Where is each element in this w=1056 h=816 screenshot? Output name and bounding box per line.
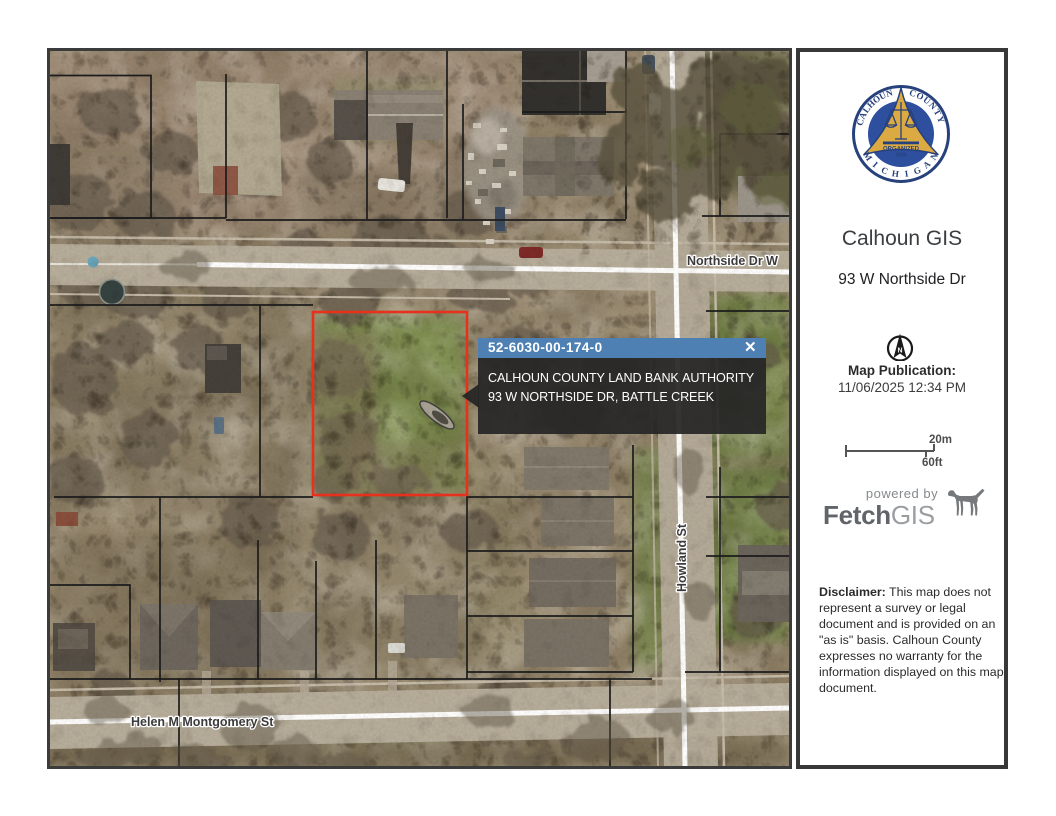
svg-text:N: N — [897, 348, 902, 355]
svg-text:1833: 1833 — [895, 153, 906, 159]
svg-text:H: H — [891, 168, 899, 179]
svg-text:Northside Dr W: Northside Dr W — [687, 254, 778, 268]
svg-text:60ft: 60ft — [922, 457, 943, 469]
svg-text:Howland St: Howland St — [675, 523, 689, 592]
svg-text:Helen M Montgomery St: Helen M Montgomery St — [131, 715, 274, 729]
svg-text:20m: 20m — [929, 434, 952, 446]
